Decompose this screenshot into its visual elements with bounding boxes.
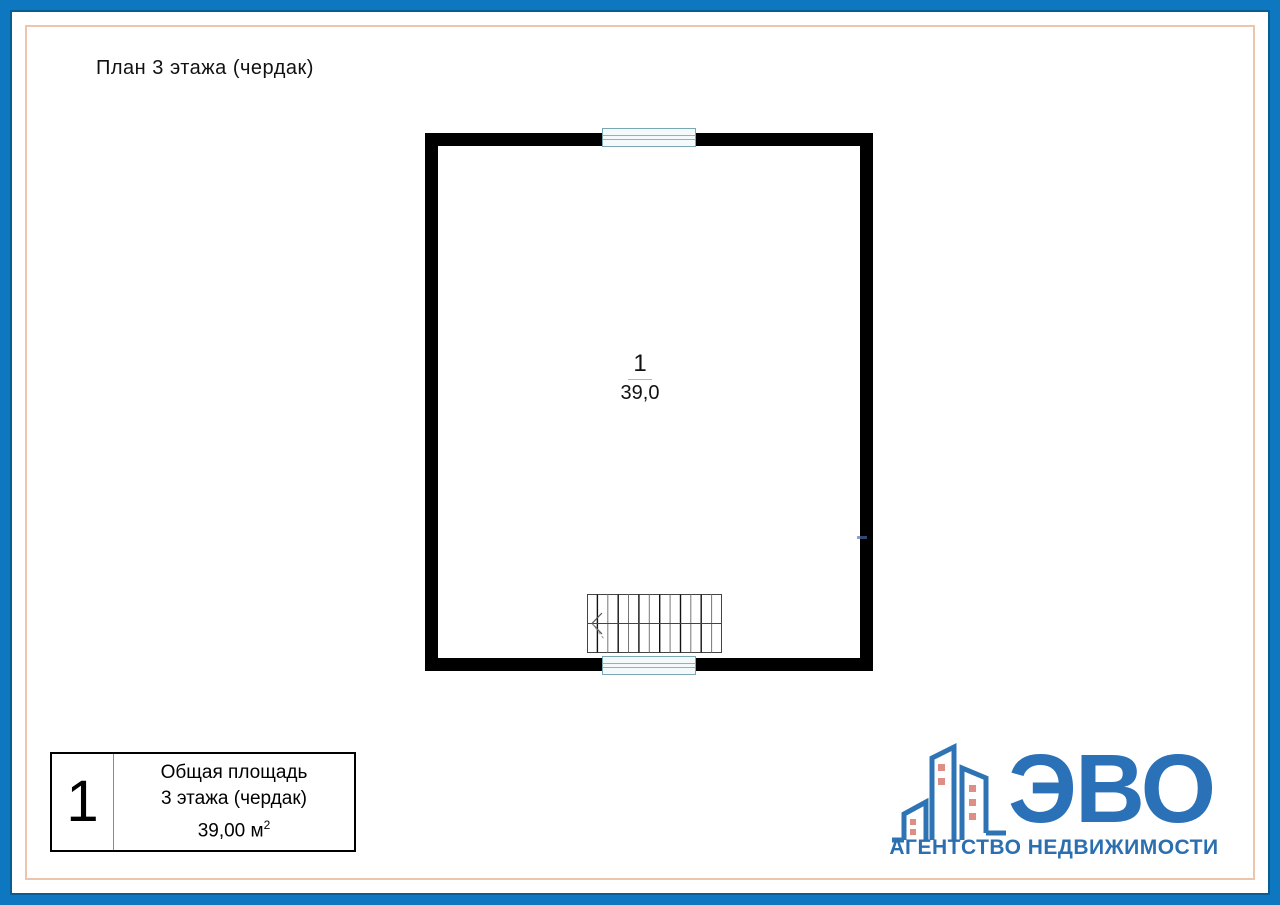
logo-brand-text: ЭВО xyxy=(1008,740,1214,837)
legend-number-cell: 1 xyxy=(52,754,114,850)
legend-room-number: 1 xyxy=(66,773,98,831)
room-label-divider xyxy=(628,379,652,380)
right-wall-mark xyxy=(857,536,867,539)
window-symbol-top xyxy=(602,128,696,147)
buildings-logo-icon xyxy=(890,742,1008,846)
window-symbol-bottom xyxy=(602,656,696,675)
plan-title: План 3 этажа (чердак) xyxy=(96,57,314,80)
room-label: 1 39,0 xyxy=(584,352,696,404)
logo-tagline: АГЕНТСТВО НЕДВИЖИМОСТИ xyxy=(888,836,1220,860)
floor-plan-page: План 3 этажа (чердак) 1 39,0 1 Общая xyxy=(0,0,1280,905)
room-number: 1 xyxy=(584,352,696,376)
legend-text-cell: Общая площадь 3 этажа (чердак) 39,00 м2 xyxy=(114,754,354,850)
staircase-symbol xyxy=(587,594,722,653)
legend-caption-line1: Общая площадь xyxy=(161,760,308,786)
legend-area-value: 39,00 м2 xyxy=(198,812,271,844)
legend-caption-line2: 3 этажа (чердак) xyxy=(161,786,307,812)
legend-table: 1 Общая площадь 3 этажа (чердак) 39,00 м… xyxy=(50,752,356,852)
agency-logo: ЭВО АГЕНТСТВО НЕДВИЖИМОСТИ xyxy=(888,740,1220,865)
room-area: 39,0 xyxy=(584,382,696,404)
